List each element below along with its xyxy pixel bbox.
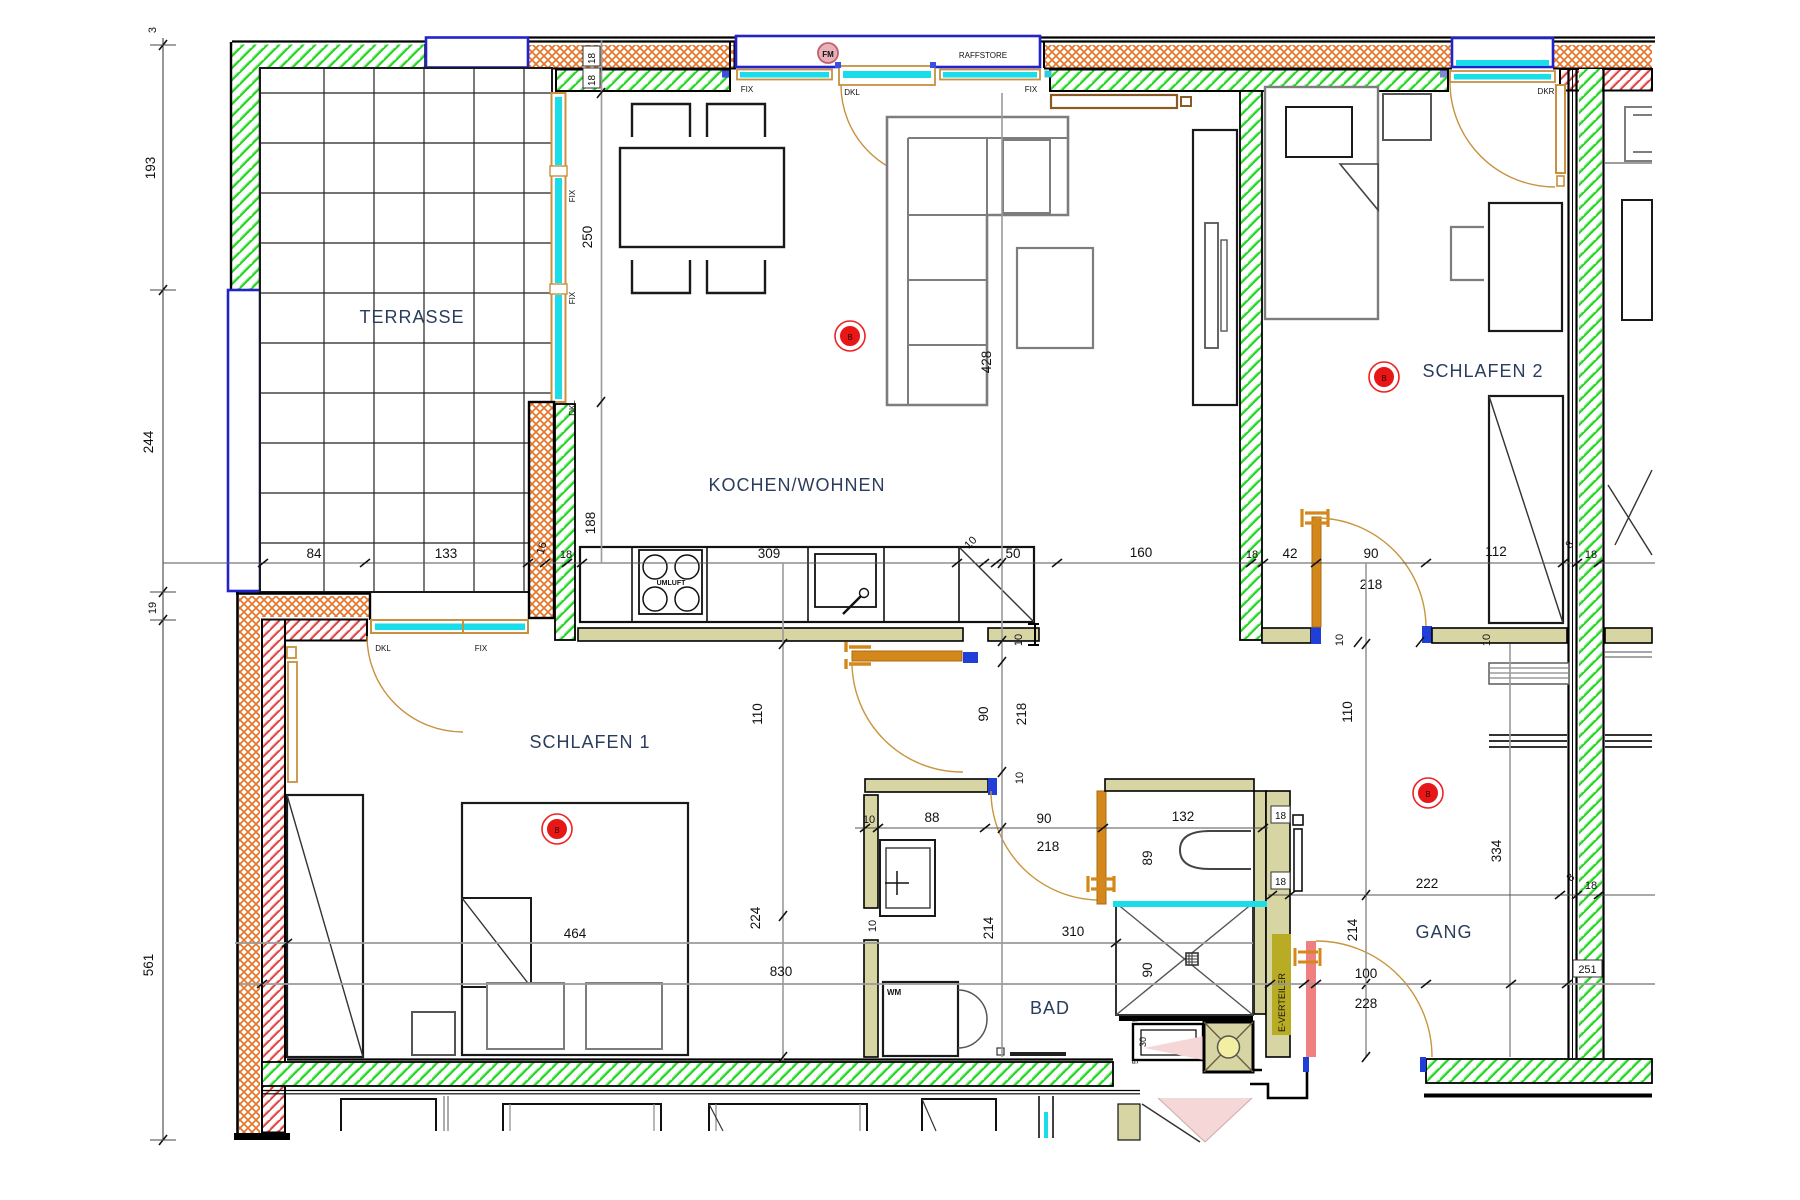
svg-text:224: 224 (748, 906, 763, 929)
svg-text:10: 10 (1014, 772, 1026, 784)
svg-text:BAD: BAD (1030, 998, 1070, 1018)
svg-text:B: B (847, 333, 852, 342)
svg-text:KOCHEN/WOHNEN: KOCHEN/WOHNEN (708, 475, 885, 495)
svg-text:30: 30 (1138, 1037, 1148, 1047)
svg-text:561: 561 (141, 954, 156, 977)
svg-text:3: 3 (147, 27, 159, 33)
svg-text:FIX: FIX (568, 189, 577, 202)
svg-text:10: 10 (867, 920, 879, 932)
svg-text:310: 310 (1062, 924, 1085, 939)
svg-text:90: 90 (1036, 811, 1051, 826)
svg-text:18: 18 (1246, 549, 1258, 561)
svg-text:18: 18 (560, 549, 572, 561)
svg-text:132: 132 (1172, 809, 1195, 824)
svg-text:FIX: FIX (1025, 85, 1038, 94)
svg-text:110: 110 (1340, 701, 1355, 723)
svg-text:42: 42 (1282, 546, 1297, 561)
svg-text:193: 193 (143, 157, 158, 180)
svg-text:89: 89 (1140, 850, 1155, 865)
svg-text:228: 228 (1355, 996, 1378, 1011)
svg-text:DKR: DKR (1538, 87, 1555, 96)
svg-text:FIX: FIX (475, 644, 488, 653)
svg-text:100: 100 (1355, 966, 1378, 981)
svg-text:188: 188 (583, 512, 598, 535)
svg-text:214: 214 (981, 916, 996, 939)
svg-text:90: 90 (1140, 962, 1155, 977)
svg-text:WM: WM (887, 988, 902, 997)
svg-text:DKL: DKL (375, 644, 391, 653)
svg-text:218: 218 (1037, 839, 1060, 854)
svg-text:112: 112 (1485, 544, 1507, 559)
svg-text:5: 5 (1131, 1059, 1140, 1064)
svg-text:18: 18 (1275, 877, 1287, 888)
svg-text:SCHLAFEN 1: SCHLAFEN 1 (529, 732, 650, 752)
svg-text:18: 18 (587, 52, 598, 64)
svg-text:18: 18 (1275, 811, 1287, 822)
svg-text:TERRASSE: TERRASSE (359, 307, 464, 327)
svg-text:90: 90 (976, 706, 991, 721)
svg-text:18: 18 (587, 74, 598, 86)
svg-text:UMLUFT: UMLUFT (657, 580, 686, 587)
svg-text:88: 88 (924, 810, 939, 825)
svg-text:251: 251 (1578, 964, 1596, 976)
svg-text:B: B (1425, 790, 1430, 799)
svg-text:464: 464 (564, 926, 587, 941)
svg-text:84: 84 (306, 546, 322, 561)
svg-text:E-VERTEILER: E-VERTEILER (1277, 973, 1287, 1032)
svg-text:830: 830 (770, 964, 793, 979)
svg-text:B: B (1381, 374, 1386, 383)
svg-text:218: 218 (1014, 703, 1029, 726)
svg-text:214: 214 (1345, 918, 1360, 941)
svg-text:DKL: DKL (844, 88, 860, 97)
svg-text:50: 50 (1005, 546, 1020, 561)
svg-text:B: B (554, 826, 559, 835)
svg-text:334: 334 (1489, 839, 1504, 862)
svg-text:133: 133 (435, 546, 458, 561)
svg-text:10: 10 (863, 814, 875, 826)
svg-text:FIX: FIX (741, 85, 754, 94)
svg-text:10: 10 (1481, 634, 1493, 646)
svg-text:19: 19 (147, 602, 159, 614)
svg-text:5: 5 (1131, 1017, 1140, 1022)
svg-text:218: 218 (1360, 577, 1383, 592)
svg-text:428: 428 (979, 351, 994, 374)
svg-text:GANG: GANG (1415, 922, 1472, 942)
svg-text:SCHLAFEN 2: SCHLAFEN 2 (1422, 361, 1543, 381)
svg-text:10: 10 (1334, 634, 1346, 646)
svg-text:10: 10 (1013, 634, 1025, 646)
svg-text:309: 309 (758, 546, 781, 561)
svg-text:FM: FM (822, 50, 834, 59)
svg-text:250: 250 (580, 226, 595, 249)
svg-text:90: 90 (1363, 546, 1378, 561)
svg-text:FIX: FIX (568, 291, 577, 304)
svg-text:18: 18 (1585, 880, 1597, 892)
svg-text:18: 18 (1585, 549, 1597, 561)
svg-text:222: 222 (1416, 876, 1439, 891)
svg-text:160: 160 (1130, 545, 1153, 560)
svg-text:110: 110 (750, 703, 765, 725)
svg-text:RAFFSTORE: RAFFSTORE (959, 51, 1007, 60)
svg-text:DKL: DKL (568, 400, 577, 416)
svg-text:244: 244 (141, 430, 156, 453)
